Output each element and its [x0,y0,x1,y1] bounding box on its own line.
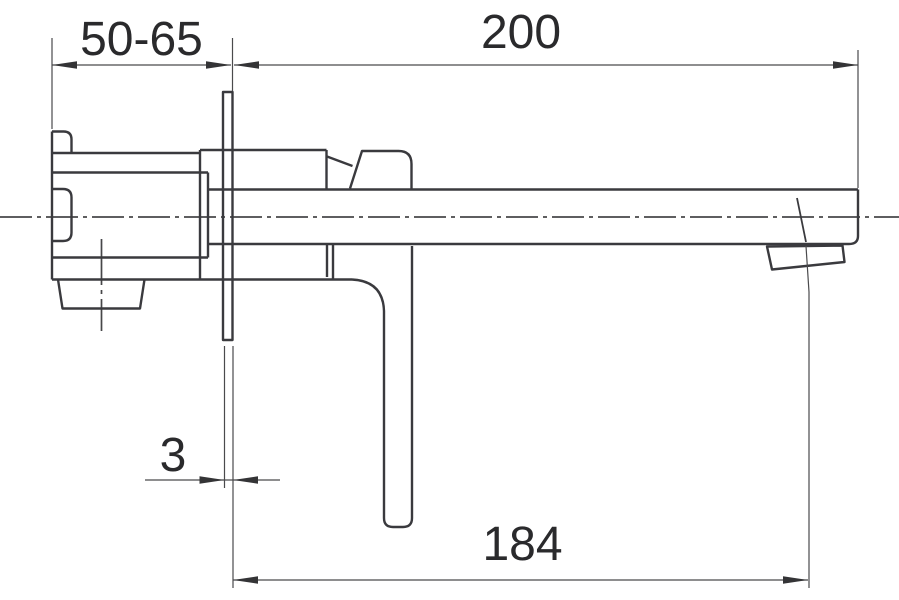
escutcheon-plate [223,92,233,340]
top-mounting-tab [52,132,72,154]
side-mounting-tab [52,189,72,241]
dimension-outlet-reach: 184 [233,246,809,588]
dimension-arrow-right [783,576,808,583]
valve-body [52,132,352,309]
dimension-arrow-left [52,61,77,68]
dimension-plate-thickness: 3 [145,346,280,588]
dimension-arrow-left [233,576,258,583]
centerlines [0,217,899,331]
dimension-arrow-left [234,61,259,68]
spout-tip-slant-line [797,198,806,242]
wall-plate [223,92,233,340]
dimension-label-embed-depth: 50-65 [80,13,203,66]
dimension-arrow-right [833,61,858,68]
handle [327,151,412,527]
dimension-arrow-right [206,61,231,68]
drawing-canvas: 50-65 200 3 184 [0,0,899,600]
dimension-embed-depth: 50-65 [52,13,233,129]
dimension-arrow-right [233,476,258,483]
handle-knob [350,151,412,189]
dimension-label-outlet-reach: 184 [482,518,562,571]
handle-base-slant [327,157,353,167]
dimension-label-spout-length: 200 [481,6,561,59]
extension-line-right [806,246,809,588]
dimension-label-plate-thickness: 3 [160,429,187,482]
dimension-arrow-left [200,476,225,483]
handle-lever-arm [352,246,412,527]
faucet-technical-drawing: 50-65 200 3 184 [0,0,899,600]
